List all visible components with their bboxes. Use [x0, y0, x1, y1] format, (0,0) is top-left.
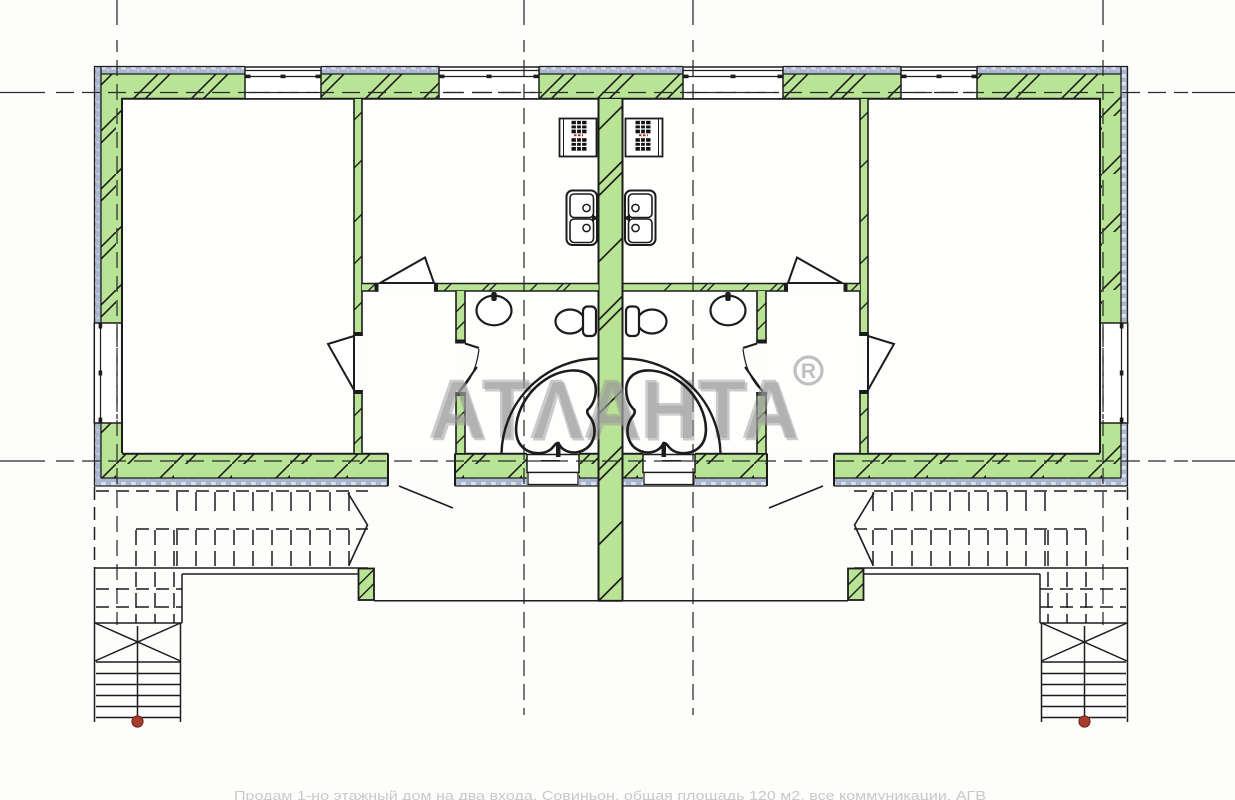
svg-text:АТΛАНТА: АТΛАНТА: [428, 362, 798, 456]
svg-text:Продам 1-но этажный дом на два: Продам 1-но этажный дом на два входа, Со…: [234, 788, 986, 800]
svg-text:R: R: [801, 360, 816, 383]
